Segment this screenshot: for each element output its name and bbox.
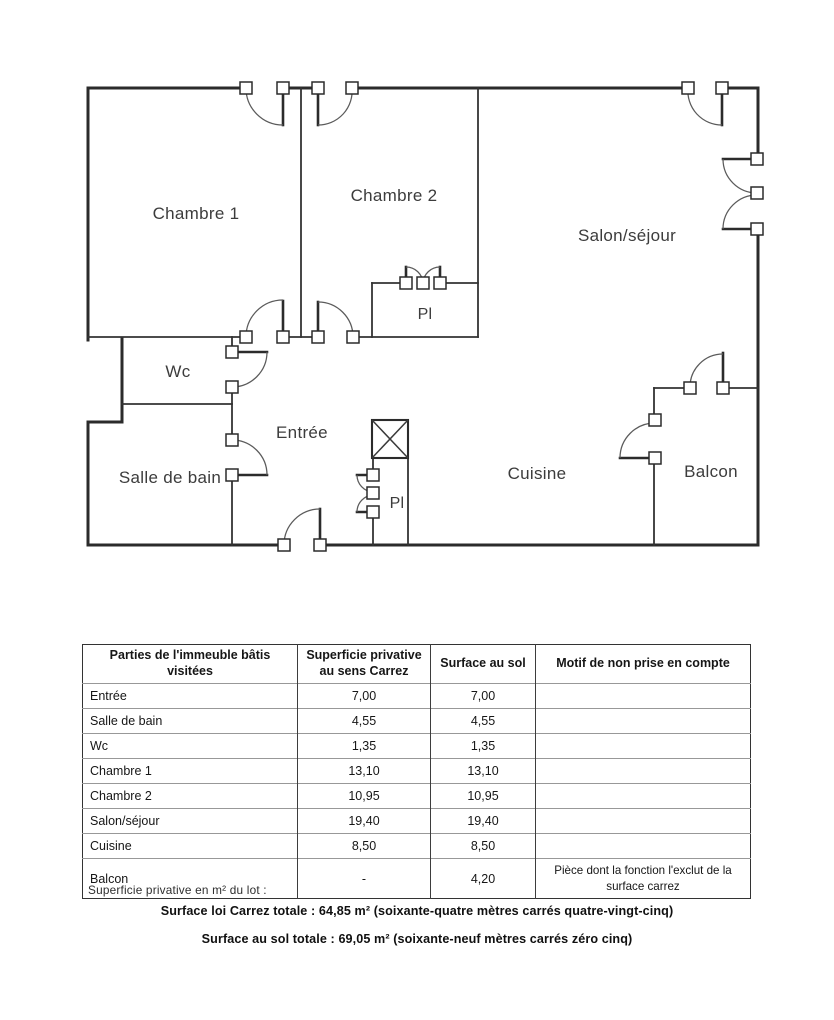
door-leaves [232,88,757,545]
technical-duct-box [372,420,408,458]
surfaces-table: Parties de l'immeuble bâtis visitées Sup… [82,644,751,899]
floor-total-line: Surface au sol totale : 69,05 m² (soixan… [0,932,834,946]
room-label-cuisine: Cuisine [508,464,567,483]
table-row-wc: Wc 1,35 1,35 [83,734,751,759]
col-header-motif: Motif de non prise en compte [536,645,751,684]
motif-cell [536,784,751,809]
table-row-salle-de-bain: Salle de bain 4,55 4,55 [83,709,751,734]
floor-plan: Chambre 1 Chambre 2 Salon/séjour Pl Wc E… [0,0,834,610]
room-cell: Entrée [83,684,298,709]
carrez-certificate-page: Chambre 1 Chambre 2 Salon/séjour Pl Wc E… [0,0,834,1020]
lot-surface-caption: Superficie privative en m² du lot : [88,883,267,897]
carrez-cell: 19,40 [298,809,431,834]
room-cell: Salle de bain [83,709,298,734]
room-cell: Cuisine [83,834,298,859]
room-label-chambre-1: Chambre 1 [153,204,240,223]
sol-cell: 4,55 [431,709,536,734]
room-label-placard-bas: Pl [390,495,405,512]
room-label-chambre-2: Chambre 2 [351,186,438,205]
table-row-chambre-2: Chambre 2 10,95 10,95 [83,784,751,809]
room-cell: Chambre 2 [83,784,298,809]
motif-cell [536,809,751,834]
room-cell: Salon/séjour [83,809,298,834]
door-frames [226,82,763,551]
table-header-row: Parties de l'immeuble bâtis visitées Sup… [83,645,751,684]
carrez-cell: 13,10 [298,759,431,784]
carrez-cell: 10,95 [298,784,431,809]
door-swing-arcs [232,88,757,545]
motif-cell [536,734,751,759]
carrez-total-line: Surface loi Carrez totale : 64,85 m² (so… [0,904,834,918]
sol-cell: 13,10 [431,759,536,784]
col-header-sol: Surface au sol [431,645,536,684]
room-label-wc: Wc [165,362,190,381]
room-label-salon-sejour: Salon/séjour [578,226,676,245]
motif-cell [536,834,751,859]
table-row-entree: Entrée 7,00 7,00 [83,684,751,709]
room-cell: Wc [83,734,298,759]
col-header-carrez: Superficie privative au sens Carrez [298,645,431,684]
table-row-chambre-1: Chambre 1 13,10 13,10 [83,759,751,784]
carrez-cell: 1,35 [298,734,431,759]
room-label-placard-haut: Pl [418,306,433,323]
carrez-cell: - [298,859,431,899]
sol-cell: 19,40 [431,809,536,834]
motif-cell [536,709,751,734]
sol-cell: 1,35 [431,734,536,759]
sol-cell: 7,00 [431,684,536,709]
sol-cell: 8,50 [431,834,536,859]
room-cell: Chambre 1 [83,759,298,784]
carrez-cell: 8,50 [298,834,431,859]
sol-cell: 10,95 [431,784,536,809]
motif-cell: Pièce dont la fonction l'exclut de la su… [536,859,751,899]
carrez-cell: 4,55 [298,709,431,734]
table-row-cuisine: Cuisine 8,50 8,50 [83,834,751,859]
room-label-salle-de-bain: Salle de bain [119,468,221,487]
room-label-entree: Entrée [276,423,328,442]
sol-cell: 4,20 [431,859,536,899]
motif-cell [536,759,751,784]
col-header-parties: Parties de l'immeuble bâtis visitées [83,645,298,684]
carrez-cell: 7,00 [298,684,431,709]
room-label-balcon: Balcon [684,462,738,481]
motif-cell [536,684,751,709]
table-row-salon-sejour: Salon/séjour 19,40 19,40 [83,809,751,834]
